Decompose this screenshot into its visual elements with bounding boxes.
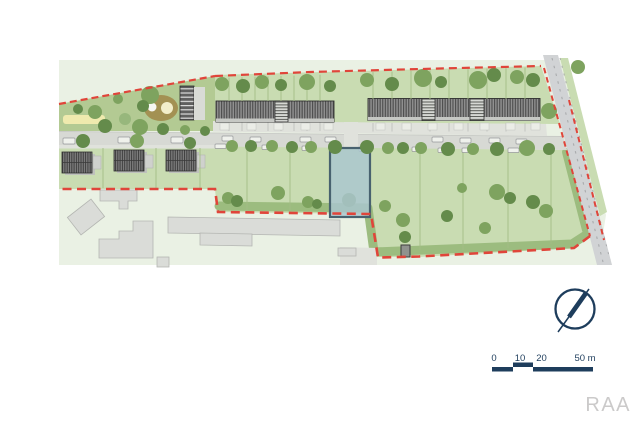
parked-car bbox=[460, 138, 471, 143]
driveway-pad bbox=[247, 123, 256, 130]
driveway-pad bbox=[324, 123, 333, 130]
tree-icon bbox=[236, 79, 250, 93]
tree-icon bbox=[441, 210, 453, 222]
tree-icon bbox=[76, 134, 90, 148]
tree-icon bbox=[271, 186, 285, 200]
site-plan-figure: 0102050 m RAA bbox=[0, 0, 640, 427]
garage-driveway bbox=[194, 87, 205, 120]
tree-icon bbox=[467, 143, 479, 155]
tree-icon bbox=[328, 140, 342, 154]
tree-icon bbox=[215, 77, 229, 91]
parked-car bbox=[63, 138, 75, 144]
tree-icon bbox=[130, 134, 144, 148]
driveway-pad bbox=[480, 123, 489, 130]
tree-icon bbox=[385, 77, 399, 91]
terrace-rows bbox=[216, 99, 540, 123]
tree-icon bbox=[266, 140, 278, 152]
tree-icon bbox=[539, 204, 553, 218]
crossing-path bbox=[344, 122, 358, 147]
tree-icon bbox=[543, 143, 555, 155]
garage bbox=[145, 155, 153, 168]
tree-icon bbox=[98, 119, 112, 133]
tree-icon bbox=[137, 100, 149, 112]
tree-icon bbox=[526, 195, 540, 209]
driveway-pad bbox=[402, 123, 411, 130]
tree-icon bbox=[490, 142, 504, 156]
parked-car bbox=[118, 137, 130, 143]
parked-car bbox=[508, 148, 519, 153]
context-building bbox=[168, 217, 340, 236]
driveway-pad bbox=[506, 123, 515, 130]
shed bbox=[401, 245, 410, 257]
scale-label: 50 m bbox=[574, 353, 595, 364]
scale-label: 20 bbox=[536, 353, 547, 364]
semi-detached-houses bbox=[62, 150, 205, 175]
tree-icon bbox=[379, 200, 391, 212]
tree-icon bbox=[414, 69, 432, 87]
tree-icon bbox=[245, 140, 257, 152]
tree-icon bbox=[302, 196, 314, 208]
tree-icon bbox=[415, 142, 427, 154]
context-building bbox=[338, 248, 356, 256]
stair-tower bbox=[275, 101, 288, 122]
tree-icon bbox=[275, 79, 287, 91]
tree-icon bbox=[132, 119, 148, 135]
tree-icon bbox=[184, 137, 196, 149]
tree-icon bbox=[255, 75, 269, 89]
driveway-pad bbox=[428, 123, 437, 130]
highlighted-plot-outline bbox=[330, 148, 370, 217]
tree-icon bbox=[286, 141, 298, 153]
scale-label: 10 bbox=[515, 353, 526, 364]
driveway-pad bbox=[531, 123, 540, 130]
tree-icon bbox=[360, 140, 374, 154]
tree-icon bbox=[510, 70, 524, 84]
parked-car bbox=[171, 137, 183, 143]
tree-icon bbox=[519, 140, 535, 156]
play-circle bbox=[161, 102, 173, 114]
tree-icon bbox=[180, 125, 190, 135]
driveway-pad bbox=[454, 123, 463, 130]
tree-icon bbox=[312, 199, 322, 209]
tree-icon bbox=[157, 123, 169, 135]
tree-icon bbox=[113, 94, 123, 104]
tree-icon bbox=[489, 184, 505, 200]
tree-icon bbox=[119, 113, 131, 125]
tree-icon bbox=[299, 74, 315, 90]
tree-icon bbox=[526, 73, 540, 87]
watermark-logo: RAA bbox=[585, 394, 631, 417]
tree-icon bbox=[469, 71, 487, 89]
highlighted-site-plot bbox=[330, 148, 370, 217]
tree-icon bbox=[324, 80, 336, 92]
tree-icon bbox=[435, 76, 447, 88]
tree-icon bbox=[231, 195, 243, 207]
tree-icon bbox=[399, 231, 411, 243]
garage-row bbox=[180, 86, 194, 120]
tree-icon bbox=[457, 183, 467, 193]
tree-icon bbox=[226, 140, 238, 152]
tree-icon bbox=[305, 141, 317, 153]
driveway-pad bbox=[376, 123, 385, 130]
tree-icon bbox=[200, 126, 210, 136]
tree-icon bbox=[397, 142, 409, 154]
tree-icon bbox=[396, 213, 410, 227]
scale-label: 0 bbox=[491, 353, 496, 364]
context-building bbox=[157, 257, 169, 267]
parked-car bbox=[432, 137, 443, 142]
driveway-pad bbox=[274, 123, 283, 130]
garage bbox=[197, 155, 205, 168]
site-plan-drawing: 0102050 m bbox=[0, 0, 640, 427]
terrace-eaves bbox=[368, 117, 540, 121]
context-building bbox=[200, 233, 252, 246]
tree-icon bbox=[382, 142, 394, 154]
garage bbox=[93, 156, 101, 169]
parked-car bbox=[215, 144, 226, 149]
tree-icon bbox=[487, 68, 501, 82]
tree-icon bbox=[73, 104, 83, 114]
tree-icon bbox=[479, 222, 491, 234]
tree-icon bbox=[88, 105, 102, 119]
driveway-pad bbox=[220, 123, 229, 130]
tree-icon bbox=[571, 60, 585, 74]
scale-bar-segment bbox=[492, 367, 513, 372]
stair-tower bbox=[422, 99, 435, 121]
tree-icon bbox=[360, 73, 374, 87]
scale-bar-segment bbox=[533, 367, 593, 372]
stair-tower bbox=[470, 99, 484, 121]
tree-icon bbox=[504, 192, 516, 204]
driveway-pad bbox=[301, 123, 310, 130]
tree-icon bbox=[441, 142, 455, 156]
